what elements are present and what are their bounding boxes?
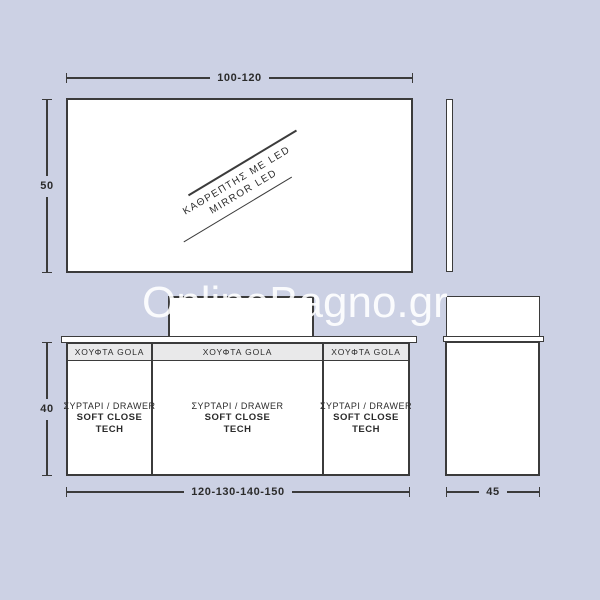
cabinet-width-dimension-label: 120-130-140-150 (184, 487, 291, 498)
drawer-front: ΣΥΡΤΑΡΙ / DRAWER SOFT CLOSE TECH (68, 361, 151, 474)
gola-handle-strip: ΧΟΥΦΤΑ GOLA (68, 344, 151, 361)
cabinet-side-view (445, 341, 540, 476)
cabinet-width-dimension-line: 120-130-140-150 (66, 487, 410, 497)
drawer-section: ΧΟΥΦΤΑ GOLA ΣΥΡΤΑΡΙ / DRAWER SOFT CLOSE … (153, 344, 324, 474)
gola-handle-strip: ΧΟΥΦΤΑ GOLA (324, 344, 408, 361)
drawer-section: ΧΟΥΦΤΑ GOLA ΣΥΡΤΑΡΙ / DRAWER SOFT CLOSE … (68, 344, 153, 474)
mirror-diagonal-label: ΚΑΘΡΕΠΤΗΣ ΜΕ LED MIRROR LED (161, 128, 318, 244)
mirror-width-dimension-label: 100-120 (210, 73, 269, 84)
mirror-height-dimension-line: 50 (42, 99, 52, 273)
cabinet-front-view: ΧΟΥΦΤΑ GOLA ΣΥΡΤΑΡΙ / DRAWER SOFT CLOSE … (66, 342, 410, 476)
drawer-front: ΣΥΡΤΑΡΙ / DRAWER SOFT CLOSE TECH (324, 361, 408, 474)
drawer-label-line3: TECH (96, 424, 124, 436)
cabinet-depth-dimension-line: 45 (446, 487, 540, 497)
drawer-front: ΣΥΡΤΑΡΙ / DRAWER SOFT CLOSE TECH (153, 361, 322, 474)
technical-drawing-canvas: 100-120 50 ΚΑΘΡΕΠΤΗΣ ΜΕ LED MIRROR LED Χ… (0, 0, 600, 600)
drawer-label-line1: ΣΥΡΤΑΡΙ / DRAWER (191, 400, 283, 412)
mirror-height-dimension-label: 50 (39, 176, 54, 197)
cabinet-depth-dimension-label: 45 (479, 487, 506, 498)
drawer-label-line2: SOFT CLOSE (333, 412, 399, 424)
drawer-label-line1: ΣΥΡΤΑΡΙ / DRAWER (63, 400, 155, 412)
cabinet-height-dimension-line: 40 (42, 342, 52, 476)
drawer-label-line3: TECH (352, 424, 380, 436)
drawer-label-line2: SOFT CLOSE (205, 412, 271, 424)
mirror-width-dimension-line: 100-120 (66, 73, 413, 83)
mirror-front-view: ΚΑΘΡΕΠΤΗΣ ΜΕ LED MIRROR LED (66, 98, 413, 273)
drawer-label-line3: TECH (224, 424, 252, 436)
mirror-side-view (446, 99, 453, 272)
basin-side-view (446, 296, 540, 337)
drawer-section: ΧΟΥΦΤΑ GOLA ΣΥΡΤΑΡΙ / DRAWER SOFT CLOSE … (324, 344, 408, 474)
cabinet-height-dimension-label: 40 (39, 399, 54, 420)
drawer-label-line1: ΣΥΡΤΑΡΙ / DRAWER (320, 400, 412, 412)
basin-front-view (168, 296, 314, 338)
drawer-label-line2: SOFT CLOSE (77, 412, 143, 424)
gola-handle-strip: ΧΟΥΦΤΑ GOLA (153, 344, 322, 361)
